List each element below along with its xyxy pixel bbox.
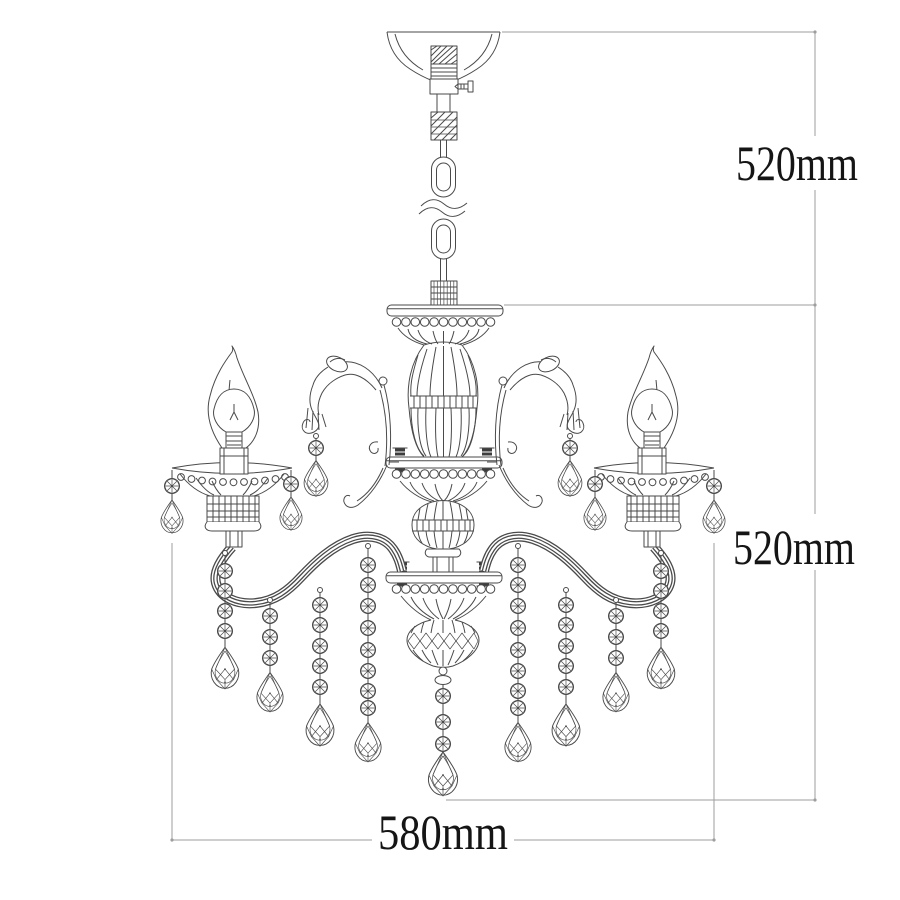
diagram-canvas: 520mm 520mm 580mm [0,0,900,900]
fixture-width-label: 580mm [378,804,508,860]
ceiling-canopy [387,32,500,140]
center-crystal-strand [429,689,458,797]
left-arm-assembly [161,346,402,762]
center-column [386,305,503,690]
bottom-finial [435,667,451,690]
suspension-chain [419,140,467,305]
chain-break-mark [421,200,467,209]
fixture-height-label: 520mm [733,519,855,575]
hanging-height-label: 520mm [736,135,858,191]
right-arm-assembly [484,346,725,762]
dimension-hanging-height: 520mm [502,30,858,306]
chandelier-dimension-diagram: 520mm 520mm 580mm [0,0,900,900]
chandelier-drawing [161,32,725,796]
